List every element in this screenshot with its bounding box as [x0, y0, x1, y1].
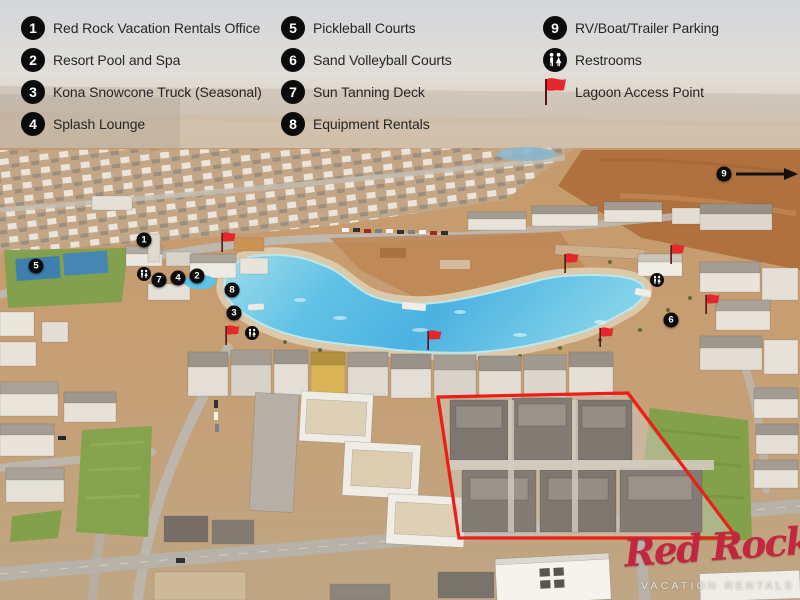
legend-item-volleyball: 6 Sand Volleyball Courts: [281, 48, 452, 72]
legend-item-snowcone: 3 Kona Snowcone Truck (Seasonal): [21, 80, 262, 104]
legend-badge-9: 9: [543, 16, 567, 40]
resort-aerial-map: 123456789 1 Red Rock Vacation Rentals Of…: [0, 0, 800, 600]
legend-label: Kona Snowcone Truck (Seasonal): [53, 84, 262, 100]
legend-label: Sand Volleyball Courts: [313, 52, 452, 68]
legend-label: RV/Boat/Trailer Parking: [575, 20, 719, 36]
legend-badge-5: 5: [281, 16, 305, 40]
legend-item-splash-lounge: 4 Splash Lounge: [21, 112, 262, 136]
legend-label: Splash Lounge: [53, 116, 145, 132]
legend-item-lagoon-access: Lagoon Access Point: [543, 80, 719, 104]
legend-badge-8: 8: [281, 112, 305, 136]
legend-badge-6: 6: [281, 48, 305, 72]
legend-item-pool-spa: 2 Resort Pool and Spa: [21, 48, 262, 72]
legend-item-office: 1 Red Rock Vacation Rentals Office: [21, 16, 262, 40]
legend-label: Red Rock Vacation Rentals Office: [53, 20, 260, 36]
legend-badge-7: 7: [281, 80, 305, 104]
legend-badge-3: 3: [21, 80, 45, 104]
legend-label: Pickleball Courts: [313, 20, 416, 36]
legend-item-equipment-rentals: 8 Equipment Rentals: [281, 112, 452, 136]
legend-badge-2: 2: [21, 48, 45, 72]
legend-column-3: 9 RV/Boat/Trailer Parking Restrooms Lago…: [543, 16, 719, 104]
legend-label: Resort Pool and Spa: [53, 52, 180, 68]
legend-label: Equipment Rentals: [313, 116, 430, 132]
legend-item-pickleball: 5 Pickleball Courts: [281, 16, 452, 40]
legend-item-rv-parking: 9 RV/Boat/Trailer Parking: [543, 16, 719, 40]
legend-badge-4: 4: [21, 112, 45, 136]
legend-label: Sun Tanning Deck: [313, 84, 425, 100]
legend-badge-1: 1: [21, 16, 45, 40]
legend-item-tanning-deck: 7 Sun Tanning Deck: [281, 80, 452, 104]
legend-column-2: 5 Pickleball Courts 6 Sand Volleyball Co…: [281, 16, 452, 136]
legend-label: Lagoon Access Point: [575, 84, 704, 100]
restrooms-icon: [543, 48, 567, 72]
flag-icon: [543, 80, 567, 104]
legend-label: Restrooms: [575, 52, 642, 68]
legend-column-1: 1 Red Rock Vacation Rentals Office 2 Res…: [21, 16, 262, 136]
legend-item-restrooms: Restrooms: [543, 48, 719, 72]
